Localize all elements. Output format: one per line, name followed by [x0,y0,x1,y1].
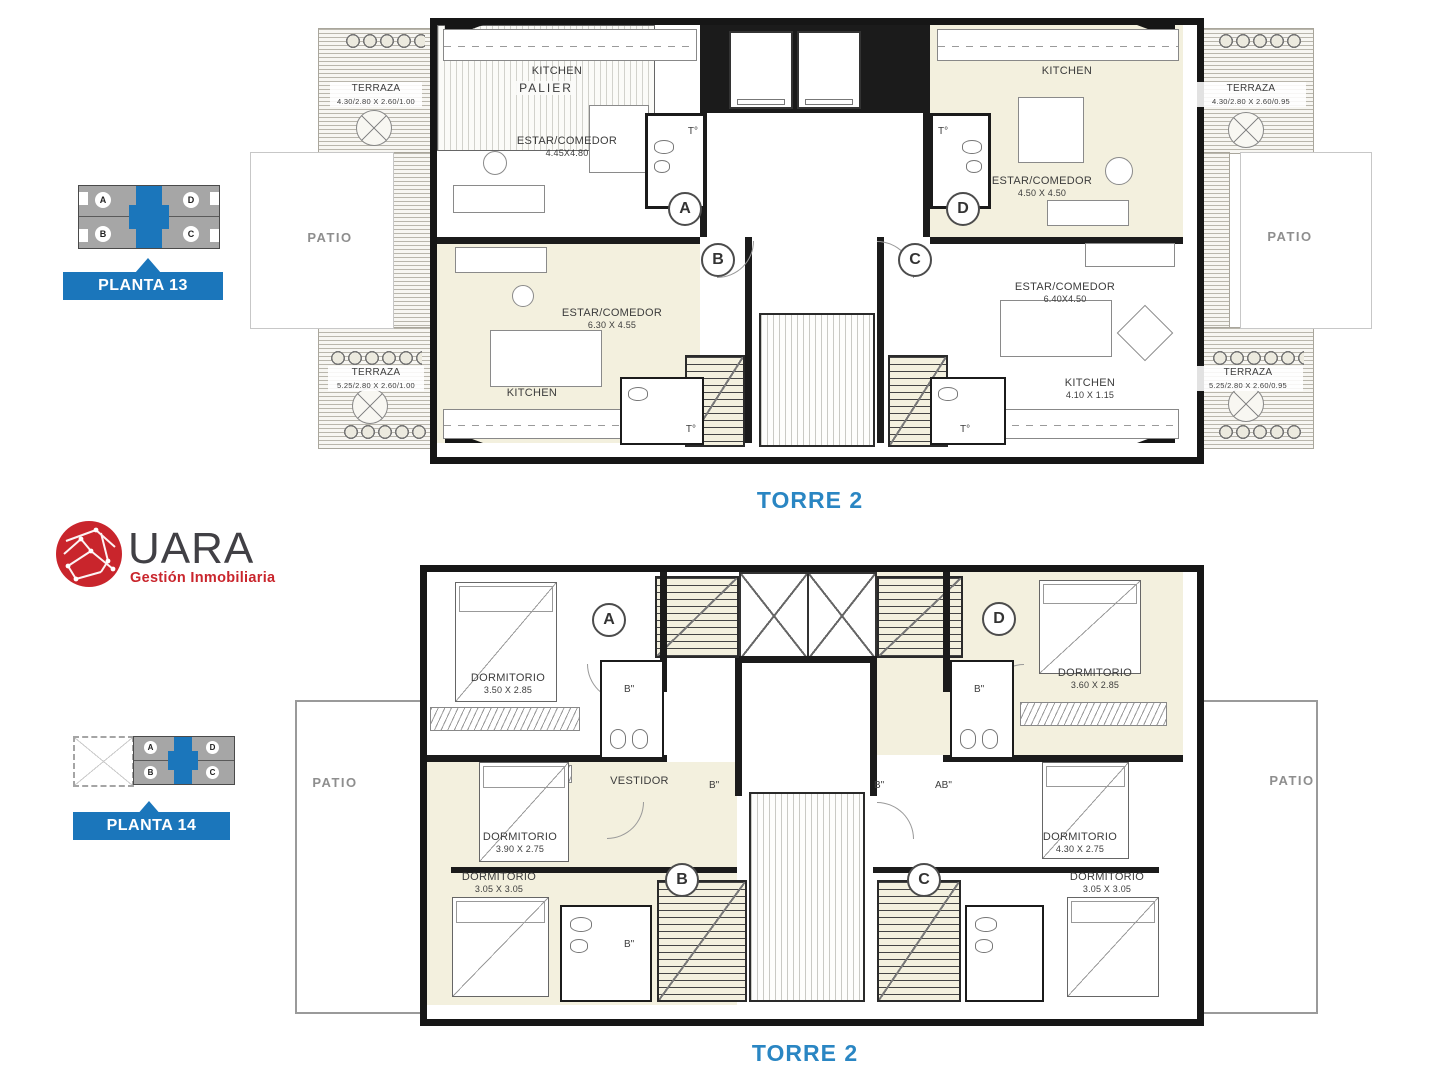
stair-shaft [759,313,875,447]
key-plan-core-bump [168,751,198,770]
terraza-table [1228,386,1264,422]
key-plan-planta-13: A D B C [78,185,220,249]
elevator-void [807,572,877,660]
toilet-label: T° [938,126,948,137]
side-table [512,285,534,307]
patio-label: PATIO [1260,773,1324,788]
bathroom: B" [560,905,652,1002]
core-wall [923,113,930,237]
armchair [1117,305,1174,362]
bath-ab-label: AB" [935,780,952,791]
kitchen-a-label: KITCHEN [492,65,622,78]
bath-fixture [975,939,993,953]
unit-badge-d: D [946,192,980,226]
side-table [483,151,507,175]
torre-2-title-bottom: TORRE 2 [420,1040,1190,1067]
toilet-label: T° [686,424,696,435]
elevator-void [739,572,809,660]
key-plan-notch [79,192,88,205]
key-plan-void [73,736,134,787]
unit-badge-b: B [665,863,699,897]
planta-13-banner: PLANTA 13 [63,272,223,300]
key-plan-notch [79,229,88,242]
banner-arrow [135,258,161,273]
key-plan-notch [210,192,219,205]
key-unit-b: B [95,226,111,242]
dormitorio-b2-label: DORMITORIO 3.05 X 3.05 [439,871,559,895]
stair-shaft [749,792,865,1002]
bathroom [965,905,1044,1002]
kitchen-b-label: KITCHEN [472,387,592,400]
bed [1039,580,1141,674]
kitchen-counter [983,409,1179,439]
terraza-table [356,110,392,146]
bed [1067,897,1159,997]
bathroom: B" [600,660,664,759]
estar-a-label: ESTAR/COMEDOR 4.45X4.80 [507,135,627,159]
key-plan-notch [210,229,219,242]
kitchen-counter [937,29,1179,61]
sofa [455,247,547,273]
dormitorio-a-label: DORMITORIO 3.50 X 2.85 [448,672,568,696]
patio-label: PATIO [298,230,362,245]
key-unit-c: C [206,766,219,779]
unit-badge-c: C [907,863,941,897]
kitchen-counter [443,29,697,61]
key-unit-d: D [206,741,219,754]
bath-fixture [654,160,670,173]
toilet-label: T° [688,126,698,137]
patio-label: PATIO [1258,229,1322,244]
bath-fixture [632,729,648,749]
floor-plan-sheet: A D B C PLANTA 13 UARA Gestión Inmobilia… [0,0,1440,1080]
bath-fixture [982,729,998,749]
bath-fixture [938,387,958,401]
patio-area [295,700,424,1014]
bed [452,897,549,997]
vestidor-label: VESTIDOR [582,775,697,788]
unit-badge-b: B [701,243,735,277]
elevator [797,31,861,109]
terraza-label: TERRAZA 5.25/2.80 X 2.60/0.95 [1193,366,1303,391]
key-unit-a: A [95,192,111,208]
key-unit-d: D [183,192,199,208]
bath-label: B" [709,780,719,791]
bath-fixture [966,160,982,173]
logo-name: UARA [128,524,254,574]
logo-tagline: Gestión Inmobiliaria [130,570,275,586]
kitchen-d-label: KITCHEN [1002,65,1132,78]
stairs [657,880,747,1002]
dormitorio-d-label: DORMITORIO 3.60 X 2.85 [1035,667,1155,691]
bath-fixture [960,729,976,749]
core-wall [870,663,877,796]
bath-fixture [654,140,674,154]
bath-label: B" [874,780,884,791]
planta-14-banner: PLANTA 14 [73,812,230,840]
unit-badge-c: C [898,243,932,277]
bathroom: T° [620,377,704,445]
planter-row [345,33,425,49]
key-plan-planta-14: A D B C [133,736,235,785]
terraza-table [352,388,388,424]
planta-14-building: B" B" B" B" B" AB" [420,565,1204,1026]
dining-table [1018,97,1084,163]
uara-logo-icon [56,521,122,587]
key-unit-c: C [183,226,199,242]
planter-row [1218,424,1303,440]
torre-2-title-top: TORRE 2 [430,487,1190,514]
sofa [1047,200,1129,226]
dormitorio-c2-label: DORMITORIO 3.05 X 3.05 [1047,871,1167,895]
terraza-label: TERRAZA 4.30/2.80 X 2.60/1.00 [330,82,422,107]
terraza-hatch [392,152,432,329]
bath-label: B" [624,684,634,695]
estar-d-label: ESTAR/COMEDOR 4.50 X 4.50 [982,175,1102,199]
bath-label: B" [974,684,984,695]
door-arc [877,802,914,839]
kitchen-c-label: KITCHEN 4.10 X 1.15 [1025,377,1155,401]
estar-b-label: ESTAR/COMEDOR 6.30 X 4.55 [552,307,672,331]
wardrobe [430,707,580,731]
elevator [729,31,793,109]
dormitorio-b1-label: DORMITORIO 3.90 X 2.75 [460,831,580,855]
patio-label: PATIO [300,775,370,790]
bath-fixture [962,140,982,154]
core-wall [745,237,752,443]
estar-c-label: ESTAR/COMEDOR 6.40X4.50 [1005,281,1125,305]
planta-13-building: PALIER T° T° T° T° [430,18,1204,464]
sofa [453,185,545,213]
planter-row [330,350,422,366]
bath-fixture [570,939,588,953]
toilet-label: T° [960,424,970,435]
bathroom: T° [930,377,1006,445]
wardrobe [1020,702,1167,726]
planter-row [1212,350,1304,366]
stairs [877,880,961,1002]
stairs [655,576,739,658]
stairs [877,576,963,658]
bath-fixture [975,917,997,932]
bath-fixture [628,387,648,401]
dormitorio-c1-label: DORMITORIO 4.30 X 2.75 [1020,831,1140,855]
bath-fixture [610,729,626,749]
bathroom: B" [950,660,1014,759]
party-wall [437,237,700,244]
bath-label: B" [624,939,634,950]
terraza-table [1228,112,1264,148]
terraza-label: TERRAZA 4.30/2.80 X 2.60/0.95 [1196,82,1306,107]
dining-table [490,330,602,387]
key-plan-core-bump [129,205,169,229]
unit-badge-a: A [592,603,626,637]
key-unit-b: B [144,766,157,779]
dining-table [1000,300,1112,357]
side-table [1105,157,1133,185]
interior-wall [943,572,950,692]
planter-row [343,424,428,440]
key-unit-a: A [144,741,157,754]
patio-area [1190,700,1318,1014]
planter-row [1218,33,1303,49]
terraza-label: TERRAZA 5.25/2.80 X 2.60/1.00 [328,366,424,391]
bath-fixture [570,917,592,932]
unit-badge-a: A [668,192,702,226]
unit-badge-d: D [982,602,1016,636]
sofa [1085,243,1175,267]
core-wall [735,656,877,663]
core-wall [735,663,742,796]
palier-label: PALIER [516,81,576,95]
